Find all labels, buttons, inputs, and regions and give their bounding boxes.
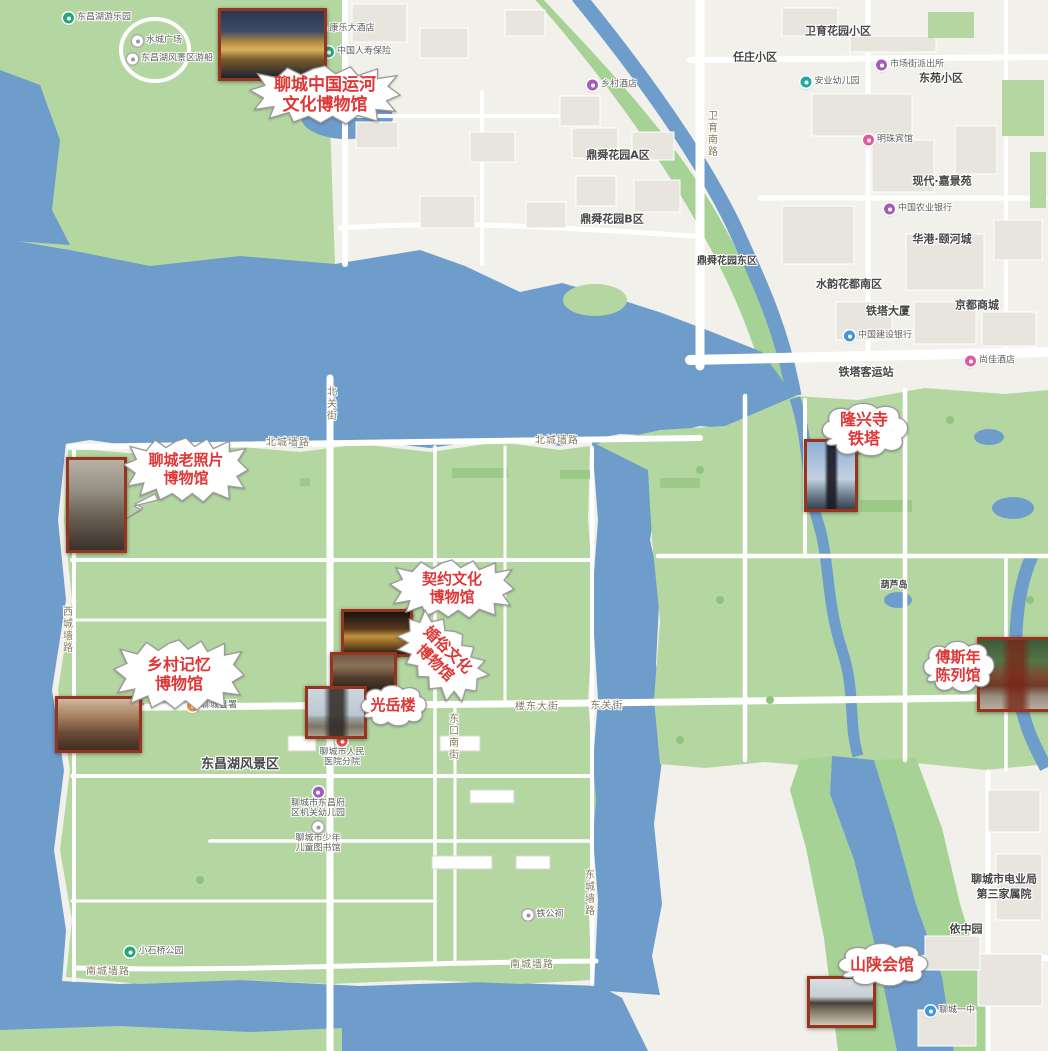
old-photo-museum-label: 聊城老照片博物馆 [148,452,223,487]
street-label: 北城墙路 [266,434,310,449]
street-label: 北关街 [323,386,338,422]
poi-label: 康乐大酒店 [329,24,374,34]
poi-label: 聊城市少年儿童图书馆 [295,834,340,855]
poi-label: 尚佳酒店 [979,356,1015,366]
rural-memory-museum[interactable]: 乡村记忆博物馆 [114,640,244,710]
district-label: 鼎舜花园东区 [697,256,757,268]
district-label: 东昌湖风景区 [201,757,279,773]
poi-purple: 中国农业银行 [884,204,952,215]
district-label: 水韵花都南区 [816,277,882,290]
longxing-pagoda-label: 隆兴寺铁塔 [840,411,888,449]
poi-label: 聊城一中 [939,1006,975,1016]
poi-blue: 聊城一中 [925,1006,975,1017]
map-pin-icon[interactable] [312,787,323,798]
fusinian-hall[interactable]: 傅斯年陈列馆 [920,642,996,692]
lake-island [563,284,627,316]
district-label: 卫育花园小区 [805,24,871,37]
pond-east [992,497,1034,519]
district-label: 现代·嘉景苑 [912,174,971,187]
longxing-pagoda[interactable]: 隆兴寺铁塔 [818,404,910,456]
poi-white: 聊城市少年儿童图书馆 [295,822,340,855]
map-pin-icon[interactable] [925,1006,936,1017]
street-label: 北城墙路 [535,432,579,447]
poi-label: 中国农业银行 [898,204,952,214]
district-label: 铁塔大厦 [866,304,910,317]
district-label: 鼎舜花园B区 [580,212,643,225]
poi-label: 东昌湖风景区游船 [141,54,213,64]
poi-purple: 乡村酒店 [587,80,637,91]
poi-label: 东昌湖游乐园 [77,13,131,23]
map-pin-icon[interactable] [876,60,887,71]
guangyue-tower-label: 光岳楼 [370,697,415,715]
map-pin-icon[interactable] [127,54,138,65]
poi-label: 铁公祠 [536,910,563,920]
district-label: 鼎舜花园A区 [586,148,650,161]
poi-label: 小石桥公园 [138,947,183,957]
street-label: 南城墙路 [86,963,130,978]
poi-pink: 尚佳酒店 [965,356,1015,367]
poi-label: 中国人寿保险 [337,47,391,57]
street-label: 西城墙路 [59,606,74,654]
contract-culture-museum[interactable]: 契约文化博物馆 [390,560,514,618]
pond-hulu [884,592,912,608]
street-label: 南城墙路 [510,956,554,971]
district-label: 第三家属院 [977,887,1032,900]
liaocheng-museums-map: 聊城中国运河文化博物馆聊城老照片博物馆乡村记忆博物馆契约文化博物馆婚俗文化博物馆… [0,0,1048,1051]
district-label: 依中园 [950,922,983,935]
street-label: 卫育南路 [704,110,719,158]
map-pin-icon[interactable] [587,80,598,91]
street-label: 东口南街 [445,713,460,761]
street-label: 东城墙路 [581,869,596,917]
guangyue-tower[interactable]: 光岳楼 [358,686,428,726]
canal-museum-label: 聊城中国运河文化博物馆 [274,75,376,115]
map-pin-icon[interactable] [522,910,533,921]
district-label: 任庄小区 [733,50,777,63]
map-pin-icon[interactable] [844,331,855,342]
poi-label: 聊城市东昌府区机关幼儿园 [291,799,345,820]
poi-green: 东昌湖游乐园 [63,13,131,24]
poi-blue: 中国建设银行 [844,331,912,342]
poi-label: 市场街派出所 [890,60,944,70]
poi-white: 水城广场 [132,36,182,47]
poi-label: 水城广场 [146,36,182,46]
map-pin-icon[interactable] [124,947,135,958]
poi-label: 乡村酒店 [601,80,637,90]
shanshan-guildhall-label: 山陕会馆 [850,956,914,975]
poi-pink: 明珠宾馆 [863,135,913,146]
poi-white: 铁公祠 [522,910,563,921]
rural-memory-museum-label: 乡村记忆博物馆 [147,656,211,694]
poi-label: 中国建设银行 [858,331,912,341]
pond-east-2 [974,429,1004,445]
canal-museum[interactable]: 聊城中国运河文化博物馆 [250,66,400,124]
map-pin-icon[interactable] [132,36,143,47]
map-pin-icon[interactable] [965,356,976,367]
contract-culture-museum-label: 契约文化博物馆 [422,571,482,606]
old-photo-museum-photo[interactable] [66,457,127,553]
map-pin-icon[interactable] [63,13,74,24]
map-pin-icon[interactable] [863,135,874,146]
shanshan-guildhall[interactable]: 山陕会馆 [834,944,930,986]
old-photo-museum[interactable]: 聊城老照片博物馆 [124,438,248,502]
street-label: 东关街 [591,697,624,712]
poi-purple: 聊城市东昌府区机关幼儿园 [291,787,345,820]
street-label: 楼东大街 [515,698,559,713]
district-label: 华港·颐河城 [912,232,971,245]
district-label: 聊城市电业局 [971,872,1037,885]
poi-green: 中国人寿保险 [323,47,391,58]
fusinian-hall-label: 傅斯年陈列馆 [935,649,980,684]
map-pin-icon[interactable] [884,204,895,215]
poi-label: 聊城市人民医院分院 [319,748,364,769]
poi-purple: 市场街派出所 [876,60,944,71]
poi-teal: 安业幼儿园 [800,77,859,88]
map-canvas [0,0,1048,1051]
district-label: 铁塔客运站 [839,365,894,378]
poi-white: 东昌湖风景区游船 [127,54,213,65]
district-label: 东苑小区 [919,71,963,84]
district-label: 葫芦岛 [880,581,907,592]
district-label: 京都商城 [955,298,999,311]
map-pin-icon[interactable] [312,822,323,833]
poi-label: 明珠宾馆 [877,135,913,145]
map-pin-icon[interactable] [800,77,811,88]
poi-green: 小石桥公园 [124,947,183,958]
poi-red: 聊城市人民医院分院 [319,736,364,769]
poi-label: 安业幼儿园 [814,77,859,87]
